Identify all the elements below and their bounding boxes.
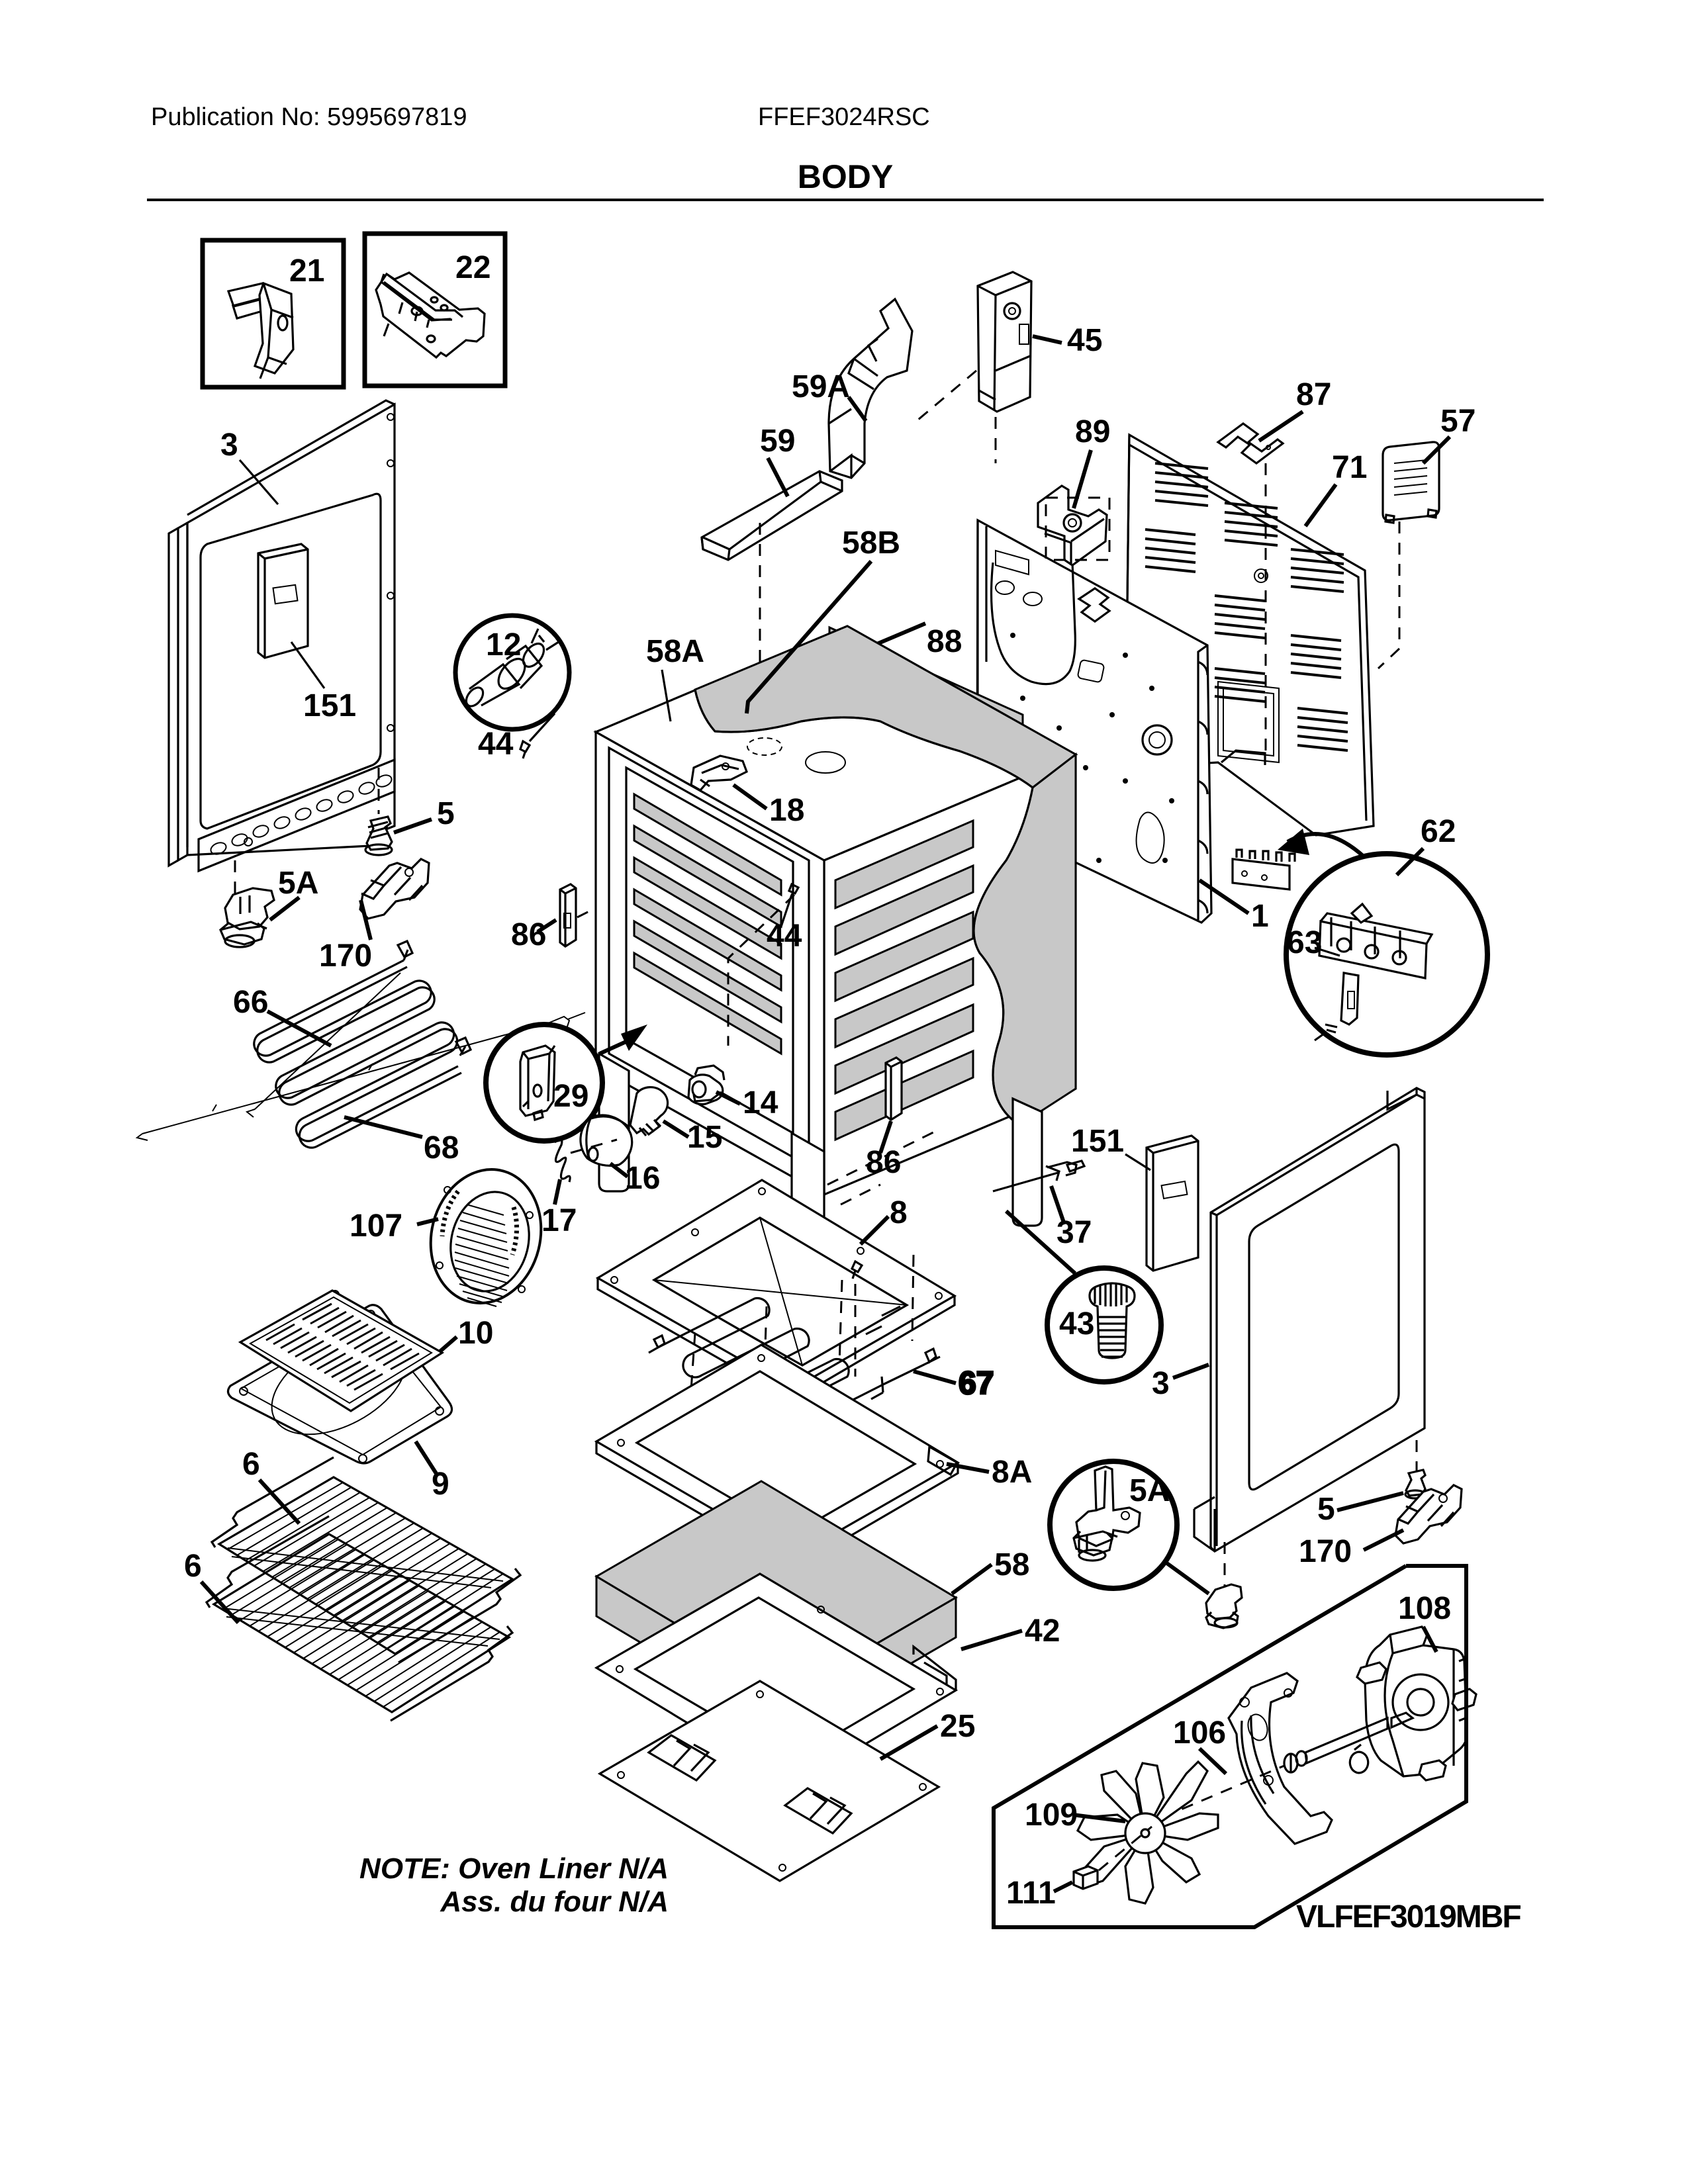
- svg-text:107: 107: [350, 1208, 402, 1244]
- svg-text:44: 44: [767, 919, 802, 954]
- svg-text:59A: 59A: [792, 369, 850, 404]
- svg-text:Publication No: 5995697819: Publication No: 5995697819: [151, 103, 467, 131]
- svg-text:16: 16: [625, 1161, 660, 1196]
- svg-text:88: 88: [927, 624, 962, 659]
- svg-text:170: 170: [1299, 1534, 1352, 1569]
- svg-text:18: 18: [769, 793, 804, 828]
- svg-text:43: 43: [1059, 1306, 1094, 1342]
- svg-text:17: 17: [541, 1203, 577, 1238]
- svg-text:89: 89: [1075, 414, 1110, 449]
- svg-text:108: 108: [1398, 1591, 1451, 1626]
- svg-text:58A: 58A: [646, 634, 704, 669]
- svg-text:151: 151: [303, 688, 356, 723]
- svg-text:109: 109: [1025, 1797, 1078, 1833]
- svg-text:6: 6: [242, 1447, 260, 1482]
- svg-text:VLFEF3019MBF: VLFEF3019MBF: [1296, 1899, 1521, 1934]
- svg-text:3: 3: [1152, 1366, 1170, 1401]
- svg-text:71: 71: [1332, 450, 1367, 485]
- svg-text:42: 42: [1025, 1614, 1060, 1649]
- svg-text:12: 12: [486, 627, 521, 662]
- svg-text:8: 8: [890, 1195, 908, 1230]
- svg-text:29: 29: [553, 1079, 588, 1114]
- svg-text:22: 22: [455, 250, 491, 285]
- svg-text:8A: 8A: [992, 1455, 1032, 1490]
- svg-text:45: 45: [1067, 323, 1102, 358]
- svg-text:67: 67: [959, 1366, 994, 1401]
- svg-text:44: 44: [478, 727, 514, 762]
- svg-text:58: 58: [994, 1547, 1029, 1582]
- svg-text:62: 62: [1421, 814, 1456, 849]
- svg-text:25: 25: [940, 1709, 975, 1744]
- svg-text:111: 111: [1006, 1876, 1056, 1911]
- svg-text:170: 170: [319, 938, 372, 974]
- svg-text:5: 5: [437, 796, 455, 831]
- svg-text:59: 59: [760, 424, 795, 459]
- svg-text:1: 1: [1251, 899, 1269, 934]
- svg-text:68: 68: [424, 1130, 459, 1165]
- svg-text:86: 86: [511, 917, 546, 952]
- svg-text:10: 10: [458, 1316, 493, 1351]
- svg-text:106: 106: [1173, 1715, 1226, 1751]
- svg-text:15: 15: [687, 1120, 722, 1155]
- svg-text:6: 6: [184, 1549, 202, 1584]
- svg-text:Ass. du four N/A: Ass. du four N/A: [440, 1886, 669, 1918]
- svg-text:NOTE: Oven Liner N/A: NOTE: Oven Liner N/A: [359, 1852, 669, 1885]
- svg-text:5A: 5A: [1129, 1473, 1170, 1508]
- svg-text:151: 151: [1071, 1124, 1124, 1159]
- svg-text:63: 63: [1287, 925, 1322, 960]
- svg-text:5A: 5A: [278, 866, 318, 901]
- svg-text:3: 3: [220, 428, 238, 463]
- svg-text:14: 14: [743, 1085, 778, 1120]
- svg-text:BODY: BODY: [798, 158, 893, 195]
- svg-text:58B: 58B: [842, 525, 900, 561]
- svg-text:57: 57: [1440, 404, 1476, 439]
- svg-text:FFEF3024RSC: FFEF3024RSC: [758, 103, 930, 131]
- svg-text:21: 21: [289, 253, 324, 289]
- svg-text:87: 87: [1296, 377, 1331, 412]
- svg-text:5: 5: [1317, 1492, 1335, 1527]
- svg-text:66: 66: [233, 985, 268, 1020]
